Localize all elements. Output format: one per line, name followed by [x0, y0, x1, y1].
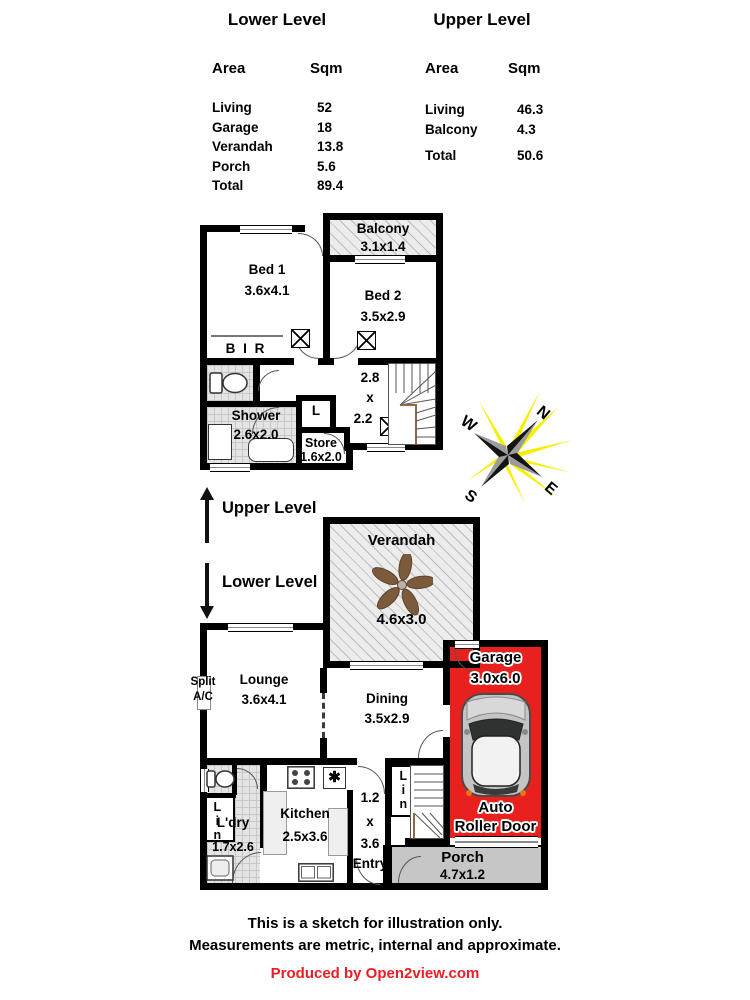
lower-level-marker: Lower Level: [222, 573, 317, 592]
compass-s: S: [461, 487, 480, 507]
compass-rose-icon: N E S W: [445, 385, 575, 510]
room-name: Porch: [415, 849, 510, 866]
stairs-lower: [410, 765, 444, 840]
floor-plan-sheet: Lower Level Upper Level Area Sqm Area Sq…: [0, 0, 750, 1000]
door-gap: [334, 358, 358, 365]
room-dim: 4.6x3.0: [330, 611, 473, 628]
room-name: Verandah: [330, 532, 473, 549]
table-row-value: 4.3: [517, 122, 536, 138]
wall: [323, 517, 480, 524]
lower-area-header: Area: [212, 60, 245, 77]
bir-slider-line: [211, 335, 283, 337]
door-arc: [258, 370, 279, 391]
wall: [200, 225, 207, 470]
table-row-value: 18: [317, 120, 332, 136]
door-arc: [298, 233, 323, 256]
room-dim: 1.6x2.0: [296, 450, 346, 464]
room-name: Balcony: [330, 221, 436, 237]
room-dim: 3.5x2.9: [333, 711, 441, 727]
wall: [200, 758, 443, 765]
wall: [436, 213, 443, 450]
linen-label: Lin: [396, 769, 410, 811]
upper-area-header: Area: [425, 60, 458, 77]
sink-icon: [298, 863, 334, 882]
room-name: Entry: [348, 856, 392, 872]
room-dim: 3.6x4.1: [210, 692, 318, 708]
room-name: L'dry: [204, 815, 262, 831]
table-total-label: Total: [425, 148, 456, 164]
room-name: Bed 1: [212, 262, 322, 278]
table-row-label: Living: [425, 102, 465, 118]
car-top-view-icon: [459, 690, 533, 800]
wall: [541, 640, 548, 890]
window: [210, 463, 250, 472]
entry-dim: 1.2: [354, 790, 386, 806]
window: [355, 255, 405, 264]
toilet-icon: [206, 767, 236, 792]
room-dim: 3.1x1.4: [330, 239, 436, 255]
ceiling-symbol-icon: [291, 329, 310, 348]
wall: [443, 640, 450, 845]
room-dim: 3.5x2.9: [330, 309, 436, 325]
stove-icon: [287, 766, 315, 789]
room-name: Bed 2: [330, 288, 436, 304]
kitchen-bench: [263, 791, 287, 855]
room-name: Shower: [218, 408, 294, 424]
table-row-value: 46.3: [517, 102, 543, 118]
up-arrow-shaft: [205, 499, 209, 543]
window: [350, 661, 423, 670]
bir-label: B I R: [210, 341, 282, 357]
credit-line: Produced by Open2view.com: [0, 965, 750, 982]
room-name: Garage: [450, 649, 541, 666]
room-dim: 4.7x1.2: [415, 867, 510, 883]
ceiling-symbol-icon: [357, 331, 376, 350]
disclaimer-line2: Measurements are metric, internal and ap…: [0, 937, 750, 954]
lower-table-title: Lower Level: [202, 10, 352, 30]
table-row-value: 13.8: [317, 139, 343, 155]
stairs-upper: [388, 363, 436, 447]
down-arrow-shaft: [205, 563, 209, 607]
table-row-value: 52: [317, 100, 332, 116]
room-name: Kitchen: [262, 806, 348, 822]
door-arc: [418, 730, 443, 758]
room-dim: 2.5x3.6: [262, 829, 348, 845]
window: [228, 623, 293, 632]
hall-dim: 2.8: [353, 370, 387, 386]
compass-e: E: [541, 479, 560, 499]
table-row-value: 5.6: [317, 159, 336, 175]
linen-label: L: [303, 403, 329, 419]
ceiling-fan-icon: [371, 554, 433, 616]
hall-dim: 2.2: [346, 411, 380, 427]
upper-sqm-header: Sqm: [508, 60, 541, 77]
toilet-icon: [209, 368, 251, 398]
table-total-value: 89.4: [317, 178, 343, 194]
door-gap: [357, 758, 385, 765]
wall: [320, 668, 327, 693]
table-row-label: Verandah: [212, 139, 273, 155]
room-dim: 3.0x6.0: [450, 670, 541, 687]
table-row-label: Balcony: [425, 122, 478, 138]
room-name: Dining: [333, 691, 441, 707]
hall-dim: x: [353, 390, 387, 406]
window: [240, 225, 292, 234]
door-gap: [294, 358, 318, 365]
table-row-label: Garage: [212, 120, 259, 136]
wall: [323, 262, 330, 358]
wall: [200, 401, 296, 407]
room-dim: 1.7x2.6: [202, 840, 264, 854]
door-gap: [443, 705, 450, 737]
down-arrow-icon: [200, 606, 214, 619]
entry-dim: 3.6: [354, 836, 386, 852]
entry-dim: x: [354, 814, 386, 830]
wall: [296, 427, 350, 433]
garage-door-label: Auto: [450, 799, 541, 816]
room-dim: 3.6x4.1: [212, 283, 322, 299]
wall: [323, 517, 330, 668]
garage-door-label: Roller Door: [450, 818, 541, 835]
open-plan-divider: [322, 693, 325, 738]
lower-sqm-header: Sqm: [310, 60, 343, 77]
compass-w: W: [457, 413, 480, 436]
upper-table-title: Upper Level: [407, 10, 557, 30]
wall: [323, 213, 443, 220]
room-dim: 2.6x2.0: [218, 427, 294, 443]
disclaimer-line1: This is a sketch for illustration only.: [0, 915, 750, 932]
table-row-label: Living: [212, 100, 252, 116]
room-name: Store: [298, 436, 344, 450]
upper-level-marker: Upper Level: [222, 499, 316, 518]
table-total-label: Total: [212, 178, 243, 194]
hot-water-icon: ✱: [323, 767, 346, 789]
room-name: Lounge: [210, 672, 318, 688]
compass-n: N: [533, 403, 553, 423]
roller-door-strip: [455, 836, 538, 848]
laundry-tub-icon: [206, 855, 234, 881]
table-row-label: Porch: [212, 159, 250, 175]
table-total-value: 50.6: [517, 148, 543, 164]
